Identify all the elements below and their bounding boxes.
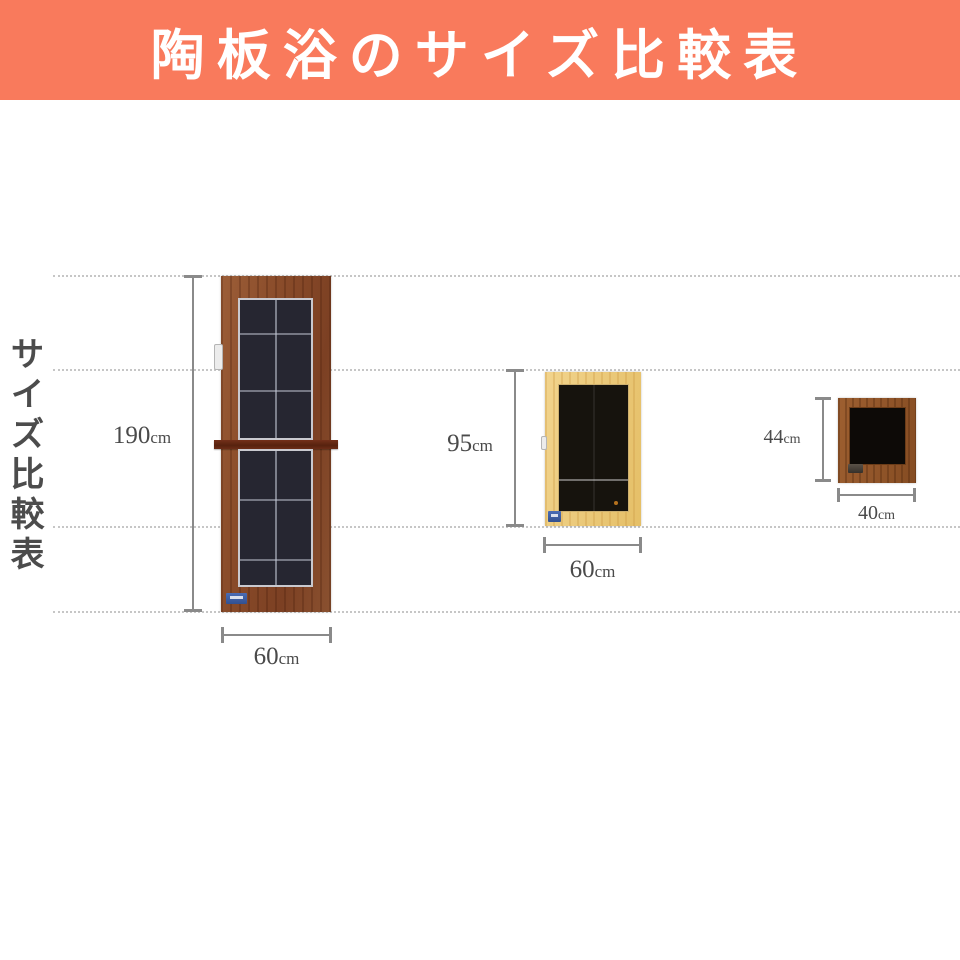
- sauna-panel-small: [838, 398, 916, 483]
- height-value-medium: 95: [447, 430, 472, 457]
- height-unit-large: cm: [150, 428, 171, 447]
- measure-cap: [815, 479, 831, 482]
- glass-grid-line: [559, 479, 628, 481]
- glass-grid-line: [275, 451, 277, 585]
- width-measure-line-medium: [544, 544, 641, 546]
- width-label-large: 60cm: [222, 643, 331, 671]
- height-value-large: 190: [113, 422, 151, 449]
- width-value-large: 60: [254, 643, 279, 670]
- size-comparison-chart: 陶板浴のサイズ比較表 サイズ比較表 190cm 60cm: [0, 0, 960, 960]
- glass-grid-line: [240, 499, 311, 501]
- glass-grid-line: [240, 390, 311, 392]
- glass-pane-large-lower: [238, 449, 313, 587]
- measure-cap: [221, 627, 224, 643]
- measure-cap: [506, 524, 524, 527]
- measure-cap: [184, 609, 202, 612]
- height-label-large: 190cm: [103, 422, 181, 450]
- width-value-small: 40: [858, 502, 878, 524]
- width-measure-line-small: [838, 494, 915, 496]
- sauna-panel-medium: [545, 372, 641, 526]
- width-label-medium: 60cm: [544, 556, 641, 584]
- height-measure-line-small: [822, 398, 824, 482]
- title-banner: 陶板浴のサイズ比較表: [0, 0, 960, 100]
- glass-pane-small: [849, 407, 906, 465]
- glass-grid-line: [240, 559, 311, 561]
- door-handle: [214, 344, 223, 370]
- width-unit-small: cm: [878, 508, 895, 523]
- heater-glint: [614, 501, 618, 505]
- height-label-small: 44cm: [752, 426, 812, 449]
- brand-badge: [848, 464, 863, 473]
- measure-cap: [913, 488, 916, 502]
- glass-reflection-line: [593, 385, 595, 511]
- sauna-panel-large: [221, 276, 331, 612]
- glass-pane-medium: [558, 384, 629, 512]
- glass-grid-line: [275, 300, 277, 438]
- measure-cap: [184, 275, 202, 278]
- vertical-side-label: サイズ比較表: [3, 336, 43, 596]
- measure-cap: [543, 537, 546, 553]
- height-unit-small: cm: [783, 432, 800, 447]
- measure-cap: [815, 397, 831, 400]
- height-measure-line-large: [192, 276, 194, 612]
- measure-cap: [329, 627, 332, 643]
- height-unit-medium: cm: [472, 436, 493, 455]
- door-handle: [541, 436, 547, 450]
- width-unit-medium: cm: [595, 562, 616, 581]
- width-label-small: 40cm: [838, 502, 915, 525]
- page-title: 陶板浴のサイズ比較表: [151, 11, 809, 90]
- glass-grid-line: [240, 333, 311, 335]
- height-value-small: 44: [763, 426, 783, 448]
- panel-divider-bar: [214, 440, 338, 449]
- height-label-medium: 95cm: [436, 430, 504, 458]
- glass-pane-large-upper: [238, 298, 313, 440]
- measure-cap: [837, 488, 840, 502]
- width-value-medium: 60: [570, 556, 595, 583]
- width-measure-line-large: [222, 634, 331, 636]
- brand-badge: [226, 593, 247, 604]
- measure-cap: [639, 537, 642, 553]
- height-measure-line-medium: [514, 370, 516, 527]
- brand-badge: [548, 511, 561, 522]
- measure-cap: [506, 369, 524, 372]
- width-unit-large: cm: [279, 649, 300, 668]
